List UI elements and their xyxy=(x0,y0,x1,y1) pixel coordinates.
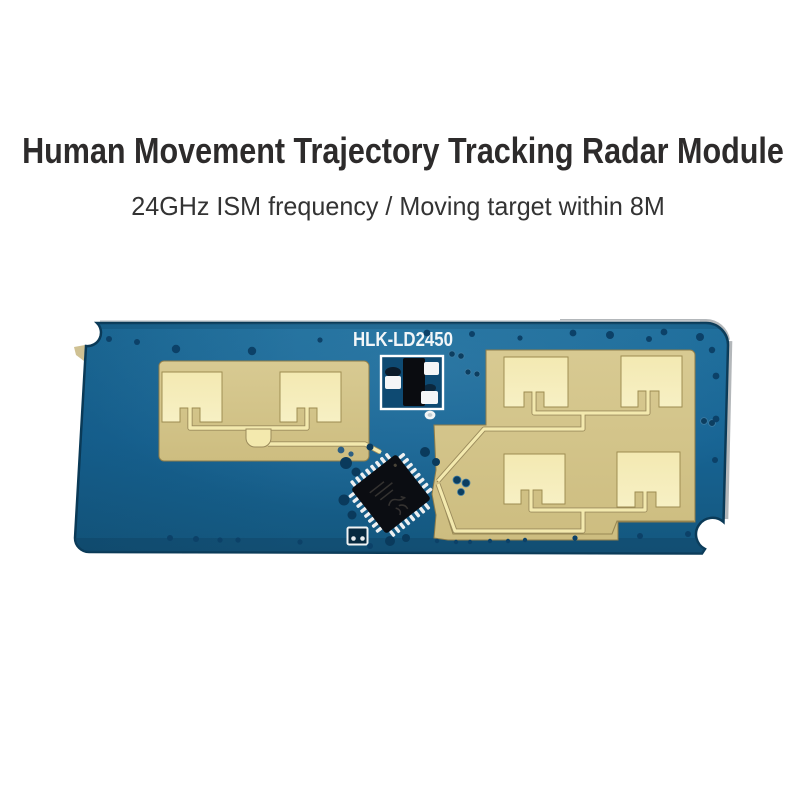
svg-text:HLK-LD2450: HLK-LD2450 xyxy=(353,329,453,351)
